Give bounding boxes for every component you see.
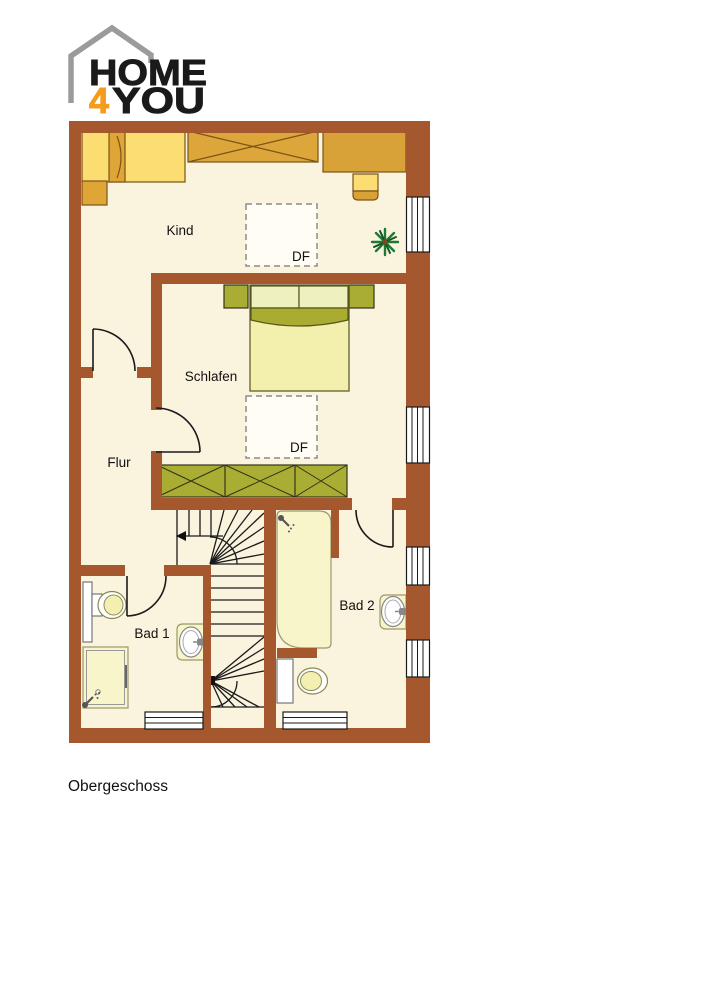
window-bad2-bottom	[283, 712, 347, 729]
logo-accent-digit: 4	[89, 80, 109, 121]
schlafen-wardrobe	[157, 465, 347, 497]
room-label-bad2: Bad 2	[339, 598, 374, 613]
kind-nightstand	[82, 181, 107, 205]
faucet-icon	[399, 608, 407, 615]
schlafen-nightstand-left	[224, 285, 248, 308]
floor-plan-page: HOME 4 YOU	[0, 0, 706, 1000]
room-label-kind: Kind	[166, 223, 193, 238]
window-bad2-upper	[407, 547, 430, 585]
bad1-sink	[177, 624, 205, 660]
room-label-flur: Flur	[107, 455, 131, 470]
floor-plan-drawing: HOME 4 YOU	[0, 0, 706, 1000]
floor-label: Obergeschoss	[68, 778, 168, 795]
window-bad2-lower	[407, 640, 430, 677]
logo: HOME 4 YOU	[71, 28, 207, 121]
schlafen-double-bed	[250, 285, 349, 391]
window-schlafen	[407, 407, 430, 463]
window-bad1-bottom	[145, 712, 203, 729]
room-label-schlafen: Schlafen	[185, 369, 238, 384]
bad1-toilet	[92, 592, 126, 619]
kind-bed	[82, 132, 185, 182]
plant-icon	[372, 229, 398, 255]
schlafen-nightstand-right	[349, 285, 374, 308]
logo-word-bottom: YOU	[112, 80, 205, 121]
room-label-bad1: Bad 1	[134, 626, 169, 641]
bad1-shower	[82, 647, 128, 708]
window-kind	[407, 197, 430, 252]
roof-window-label-schlafen: DF	[290, 440, 308, 455]
kind-stool	[353, 174, 378, 200]
roof-window-label-kind: DF	[292, 249, 310, 264]
bad1-radiator	[83, 582, 92, 642]
bad2-shower	[277, 511, 331, 648]
kind-bed-pillow	[109, 132, 125, 182]
kind-wardrobe	[188, 131, 318, 162]
kind-desk	[323, 131, 406, 172]
bad2-sink	[380, 595, 407, 629]
